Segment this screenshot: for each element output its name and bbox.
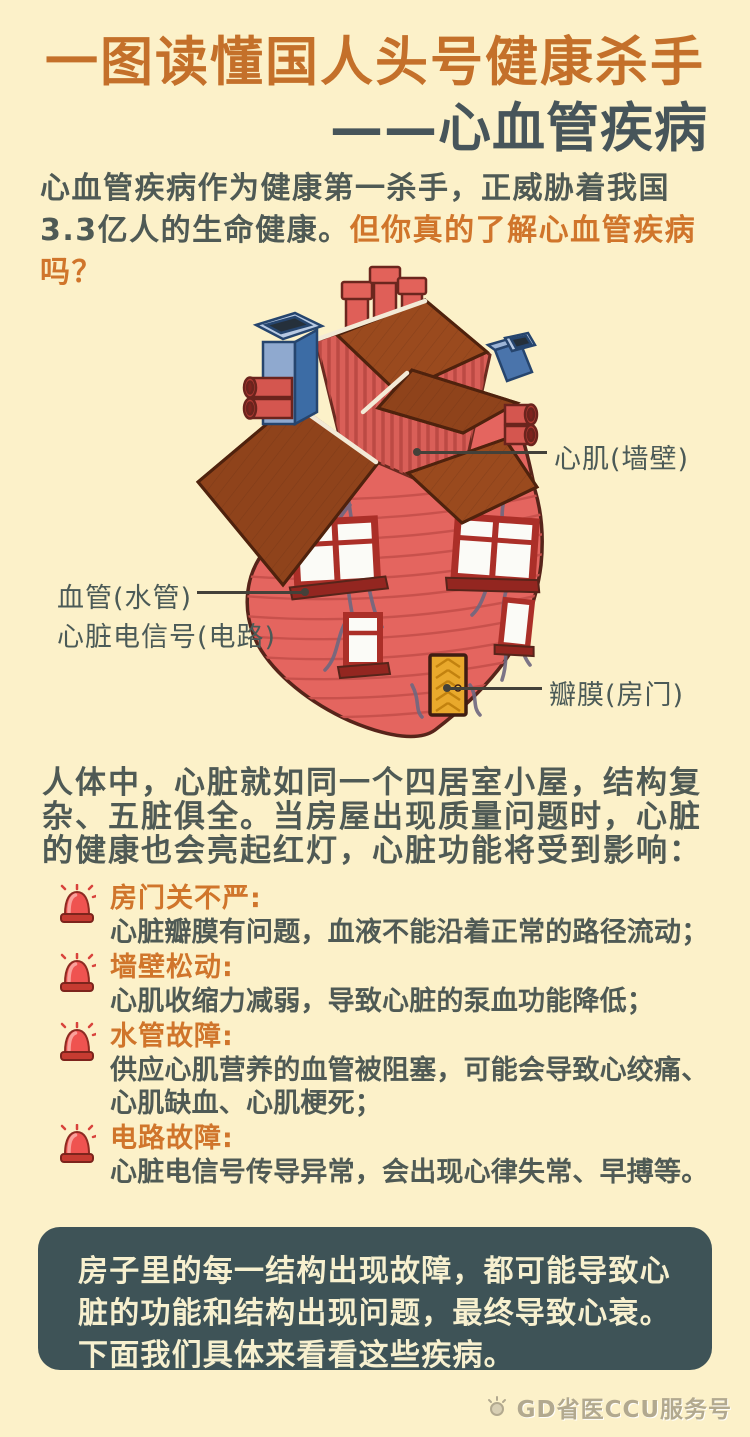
conclusion-text: 房子里的每一结构出现故障，都可能导致心脏的功能和结构出现问题，最终导致心衰。下面… [78,1251,672,1377]
siren-icon [58,1122,110,1189]
footer-account-name: GD省医CCU服务号 [517,1390,732,1424]
problem-text: 电路故障: 心脏电信号传导异常，会出现心律失常、早搏等。 [110,1122,710,1189]
label-signal: 心脏电信号(电路) [57,615,276,654]
problem-title: 墙壁松动: [110,951,710,985]
siren-icon [58,882,110,949]
myocardium-pointer-dot [413,448,421,456]
vessel-pointer-dot [301,588,309,596]
siren-icon [58,1020,110,1120]
label-myocardium: 心肌(墙壁) [554,437,689,476]
problem-desc: 心脏瓣膜有问题，血液不能沿着正常的路径流动； [110,916,710,949]
analogy-paragraph: 人体中，心脏就如同一个四居室小屋，结构复杂、五脏俱全。当房屋出现质量问题时，心脏… [42,766,714,868]
window-small-center [338,615,390,678]
problem-desc: 心脏电信号传导异常，会出现心律失常、早搏等。 [110,1156,710,1189]
valve-pointer-line [447,687,542,690]
problem-desc: 供应心肌营养的血管被阻塞，可能会导致心绞痛、心肌缺血、心肌梗死； [110,1054,710,1120]
myocardium-pointer-line [417,451,547,454]
vessel-pointer-line [197,591,305,594]
problem-item-pipe: 水管故障: 供应心肌营养的血管被阻塞，可能会导致心绞痛、心肌缺血、心肌梗死； [58,1020,710,1120]
problem-title: 水管故障: [110,1020,710,1054]
problem-text: 水管故障: 供应心肌营养的血管被阻塞，可能会导致心绞痛、心肌缺血、心肌梗死； [110,1020,710,1120]
problem-item-circuit: 电路故障: 心脏电信号传导异常，会出现心律失常、早搏等。 [58,1122,710,1189]
valve-pointer-dot [443,684,451,692]
conclusion-box: 房子里的每一结构出现故障，都可能导致心脏的功能和结构出现问题，最终导致心衰。下面… [38,1227,712,1370]
page-title: 一图读懂国人头号健康杀手 [0,20,750,96]
problem-title: 房门关不严: [110,882,710,916]
window-large-right [445,516,544,596]
blue-vent-pipe [488,333,535,381]
label-valve: 瓣膜(房门) [549,673,684,712]
problem-title: 电路故障: [110,1122,710,1156]
footer-watermark: GD省医CCU服务号 [484,1390,732,1424]
problems-list: 房门关不严: 心脏瓣膜有问题，血液不能沿着正常的路径流动； 墙壁松动: 心肌收缩… [58,882,710,1191]
label-vessel: 血管(水管) [57,576,192,615]
problem-desc: 心肌收缩力减弱，导致心脏的泵血功能降低； [110,985,710,1018]
siren-icon [58,951,110,1018]
infographic-page: 一图读懂国人头号健康杀手 ——心血管疾病 心血管疾病作为健康第一杀手，正威胁着我… [0,0,750,1437]
tap-gesture-icon [484,1394,510,1420]
page-subtitle: ——心血管疾病 [0,86,708,162]
heart-house-illustration: 心肌(墙壁) 血管(水管) 心脏电信号(电路) 瓣膜(房门) [0,255,750,747]
problem-text: 墙壁松动: 心肌收缩力减弱，导致心脏的泵血功能降低； [110,951,710,1018]
problem-item-wall: 墙壁松动: 心肌收缩力减弱，导致心脏的泵血功能降低； [58,951,710,1018]
problem-item-door: 房门关不严: 心脏瓣膜有问题，血液不能沿着正常的路径流动； [58,882,710,949]
problem-text: 房门关不严: 心脏瓣膜有问题，血液不能沿着正常的路径流动； [110,882,710,949]
